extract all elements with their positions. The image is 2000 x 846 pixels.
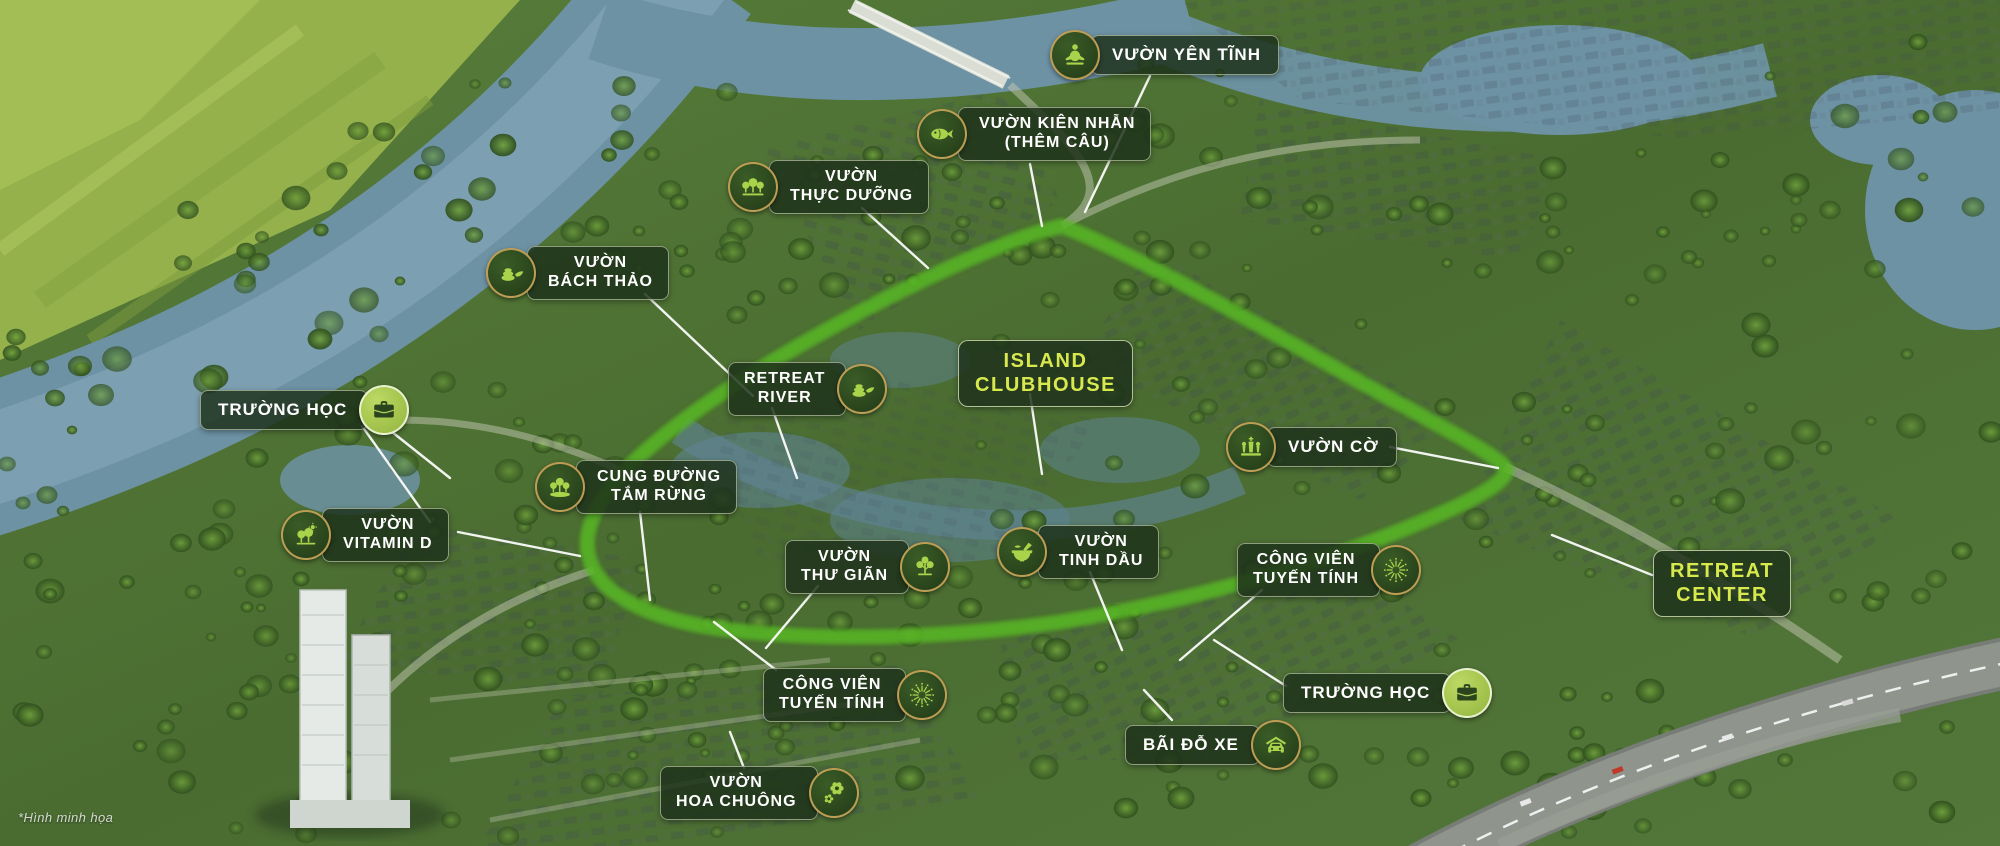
label-box: CUNG ĐƯỜNGTẮM RỪNG bbox=[576, 460, 737, 514]
label-vuon-vitamin-d[interactable]: VƯỜNVITAMIN D bbox=[281, 508, 449, 562]
label-cung-duong-tam-rung[interactable]: CUNG ĐƯỜNGTẮM RỪNG bbox=[535, 460, 737, 514]
label-box: VƯỜNHOA CHUÔNG bbox=[660, 766, 818, 820]
label-text: VƯỜN YÊN TĨNH bbox=[1112, 45, 1261, 65]
label-text: VƯỜN bbox=[801, 548, 888, 567]
zen-stones-icon bbox=[486, 248, 536, 298]
starburst-icon bbox=[1371, 545, 1421, 595]
label-text: TẮM RỪNG bbox=[597, 487, 721, 506]
masterplan-map: VƯỜN YÊN TĨNHVƯỜN KIÊN NHẪN(THÊM CÂU)VƯỜ… bbox=[0, 0, 2000, 846]
label-box: TRƯỜNG HỌC bbox=[200, 390, 368, 430]
label-text: THƯ GIÃN bbox=[801, 567, 888, 586]
label-text: VƯỜN bbox=[343, 516, 433, 535]
label-retreat-river[interactable]: RETREATRIVER bbox=[728, 362, 887, 416]
car-icon bbox=[1251, 720, 1301, 770]
label-box: TRƯỜNG HỌC bbox=[1283, 673, 1451, 713]
label-box: VƯỜNBÁCH THẢO bbox=[527, 246, 669, 300]
label-cong-vien-tuyen-tinh-dong[interactable]: CÔNG VIÊNTUYẾN TÍNH bbox=[1237, 543, 1421, 597]
label-text: ISLAND bbox=[975, 350, 1116, 374]
label-text: VƯỜN bbox=[548, 254, 653, 273]
amenity-labels: VƯỜN YÊN TĨNHVƯỜN KIÊN NHẪN(THÊM CÂU)VƯỜ… bbox=[0, 0, 2000, 846]
label-box: RETREATRIVER bbox=[728, 362, 846, 416]
label-text: RETREAT bbox=[744, 370, 825, 389]
label-vuon-hoa-chuong[interactable]: VƯỜNHOA CHUÔNG bbox=[660, 766, 859, 820]
label-text: CÔNG VIÊN bbox=[1253, 551, 1359, 570]
label-box: VƯỜNVITAMIN D bbox=[322, 508, 449, 562]
label-text: TUYẾN TÍNH bbox=[1253, 570, 1359, 589]
briefcase-icon bbox=[1442, 668, 1492, 718]
trees-sun-icon bbox=[281, 510, 331, 560]
label-vuon-yen-tinh[interactable]: VƯỜN YÊN TĨNH bbox=[1050, 30, 1279, 80]
label-box: VƯỜN KIÊN NHẪN(THÊM CÂU) bbox=[958, 107, 1151, 161]
label-text: TUYẾN TÍNH bbox=[779, 695, 885, 714]
label-island-clubhouse[interactable]: ISLANDCLUBHOUSE bbox=[958, 340, 1133, 407]
flower-icon bbox=[809, 768, 859, 818]
starburst-icon bbox=[897, 670, 947, 720]
forest-icon bbox=[535, 462, 585, 512]
chess-icon bbox=[1226, 422, 1276, 472]
label-box: VƯỜN CỜ bbox=[1267, 427, 1397, 467]
label-text: (THÊM CÂU) bbox=[979, 134, 1135, 153]
label-box: RETREATCENTER bbox=[1653, 550, 1791, 617]
label-truong-hoc-tay[interactable]: TRƯỜNG HỌC bbox=[200, 385, 409, 435]
mortar-icon bbox=[997, 527, 1047, 577]
label-box: CÔNG VIÊNTUYẾN TÍNH bbox=[1237, 543, 1380, 597]
label-text: CLUBHOUSE bbox=[975, 374, 1116, 398]
label-vuon-thu-gian[interactable]: VƯỜNTHƯ GIÃN bbox=[785, 540, 950, 594]
label-text: CÔNG VIÊN bbox=[779, 676, 885, 695]
label-vuon-bach-thao[interactable]: VƯỜNBÁCH THẢO bbox=[486, 246, 669, 300]
label-vuon-co[interactable]: VƯỜN CỜ bbox=[1226, 422, 1397, 472]
label-box: ISLANDCLUBHOUSE bbox=[958, 340, 1133, 407]
label-text: TRƯỜNG HỌC bbox=[218, 400, 347, 420]
label-box: VƯỜNTHƯ GIÃN bbox=[785, 540, 909, 594]
label-text: CUNG ĐƯỜNG bbox=[597, 468, 721, 487]
label-text: VITAMIN D bbox=[343, 535, 433, 554]
label-vuon-tinh-dau[interactable]: VƯỜNTINH DẦU bbox=[997, 525, 1159, 579]
label-text: CENTER bbox=[1670, 584, 1774, 608]
tree-icon bbox=[900, 542, 950, 592]
label-box: CÔNG VIÊNTUYẾN TÍNH bbox=[763, 668, 906, 722]
label-bai-do-xe[interactable]: BÃI ĐỖ XE bbox=[1125, 720, 1301, 770]
label-text: VƯỜN KIÊN NHẪN bbox=[979, 115, 1135, 134]
label-text: THỰC DƯỠNG bbox=[790, 187, 913, 206]
label-text: BÃI ĐỖ XE bbox=[1143, 735, 1239, 755]
label-text: RETREAT bbox=[1670, 560, 1774, 584]
briefcase-icon bbox=[359, 385, 409, 435]
label-text: VƯỜN bbox=[676, 774, 797, 793]
label-truong-hoc-nam[interactable]: TRƯỜNG HỌC bbox=[1283, 668, 1492, 718]
label-text: TRƯỜNG HỌC bbox=[1301, 683, 1430, 703]
label-vuon-thuc-duong[interactable]: VƯỜNTHỰC DƯỠNG bbox=[728, 160, 929, 214]
watermark: *Hình minh họa bbox=[18, 810, 113, 825]
label-box: VƯỜNTINH DẦU bbox=[1038, 525, 1159, 579]
trees-icon bbox=[728, 162, 778, 212]
zen-stones-icon bbox=[837, 364, 887, 414]
label-text: RIVER bbox=[744, 389, 825, 408]
label-box: VƯỜNTHỰC DƯỠNG bbox=[769, 160, 929, 214]
label-box: VƯỜN YÊN TĨNH bbox=[1091, 35, 1279, 75]
label-text: VƯỜN CỜ bbox=[1288, 437, 1379, 457]
label-text: VƯỜN bbox=[790, 168, 913, 187]
label-text: BÁCH THẢO bbox=[548, 273, 653, 292]
meditation-icon bbox=[1050, 30, 1100, 80]
label-text: TINH DẦU bbox=[1059, 552, 1143, 571]
label-text: HOA CHUÔNG bbox=[676, 793, 797, 812]
label-retreat-center[interactable]: RETREATCENTER bbox=[1653, 550, 1791, 617]
label-cong-vien-tuyen-tinh-nam[interactable]: CÔNG VIÊNTUYẾN TÍNH bbox=[763, 668, 947, 722]
label-text: VƯỜN bbox=[1059, 533, 1143, 552]
label-box: BÃI ĐỖ XE bbox=[1125, 725, 1260, 765]
label-vuon-kien-nhan[interactable]: VƯỜN KIÊN NHẪN(THÊM CÂU) bbox=[917, 107, 1151, 161]
fish-icon bbox=[917, 109, 967, 159]
